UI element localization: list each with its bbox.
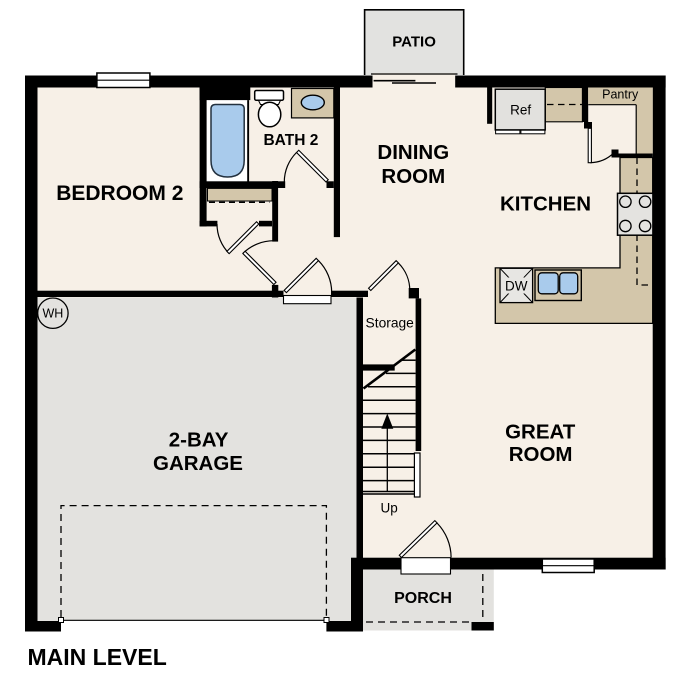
svg-text:KITCHEN: KITCHEN	[500, 193, 591, 216]
svg-text:GREAT: GREAT	[505, 420, 576, 443]
svg-text:PATIO: PATIO	[392, 33, 436, 50]
svg-text:GARAGE: GARAGE	[153, 452, 243, 475]
svg-text:ROOM: ROOM	[381, 165, 445, 188]
svg-text:DINING: DINING	[377, 141, 449, 164]
svg-text:PORCH: PORCH	[394, 590, 452, 607]
svg-text:Up: Up	[380, 501, 397, 516]
svg-text:Storage: Storage	[366, 316, 415, 331]
svg-text:ROOM: ROOM	[509, 443, 573, 466]
svg-text:Ref: Ref	[510, 103, 531, 118]
svg-text:DW: DW	[505, 279, 528, 294]
svg-text:2-BAY: 2-BAY	[169, 429, 229, 452]
svg-text:BEDROOM 2: BEDROOM 2	[56, 182, 183, 205]
svg-text:WH: WH	[42, 307, 63, 321]
svg-text:MAIN LEVEL: MAIN LEVEL	[28, 644, 167, 670]
svg-text:Pantry: Pantry	[602, 87, 639, 101]
svg-text:BATH 2: BATH 2	[263, 132, 318, 149]
